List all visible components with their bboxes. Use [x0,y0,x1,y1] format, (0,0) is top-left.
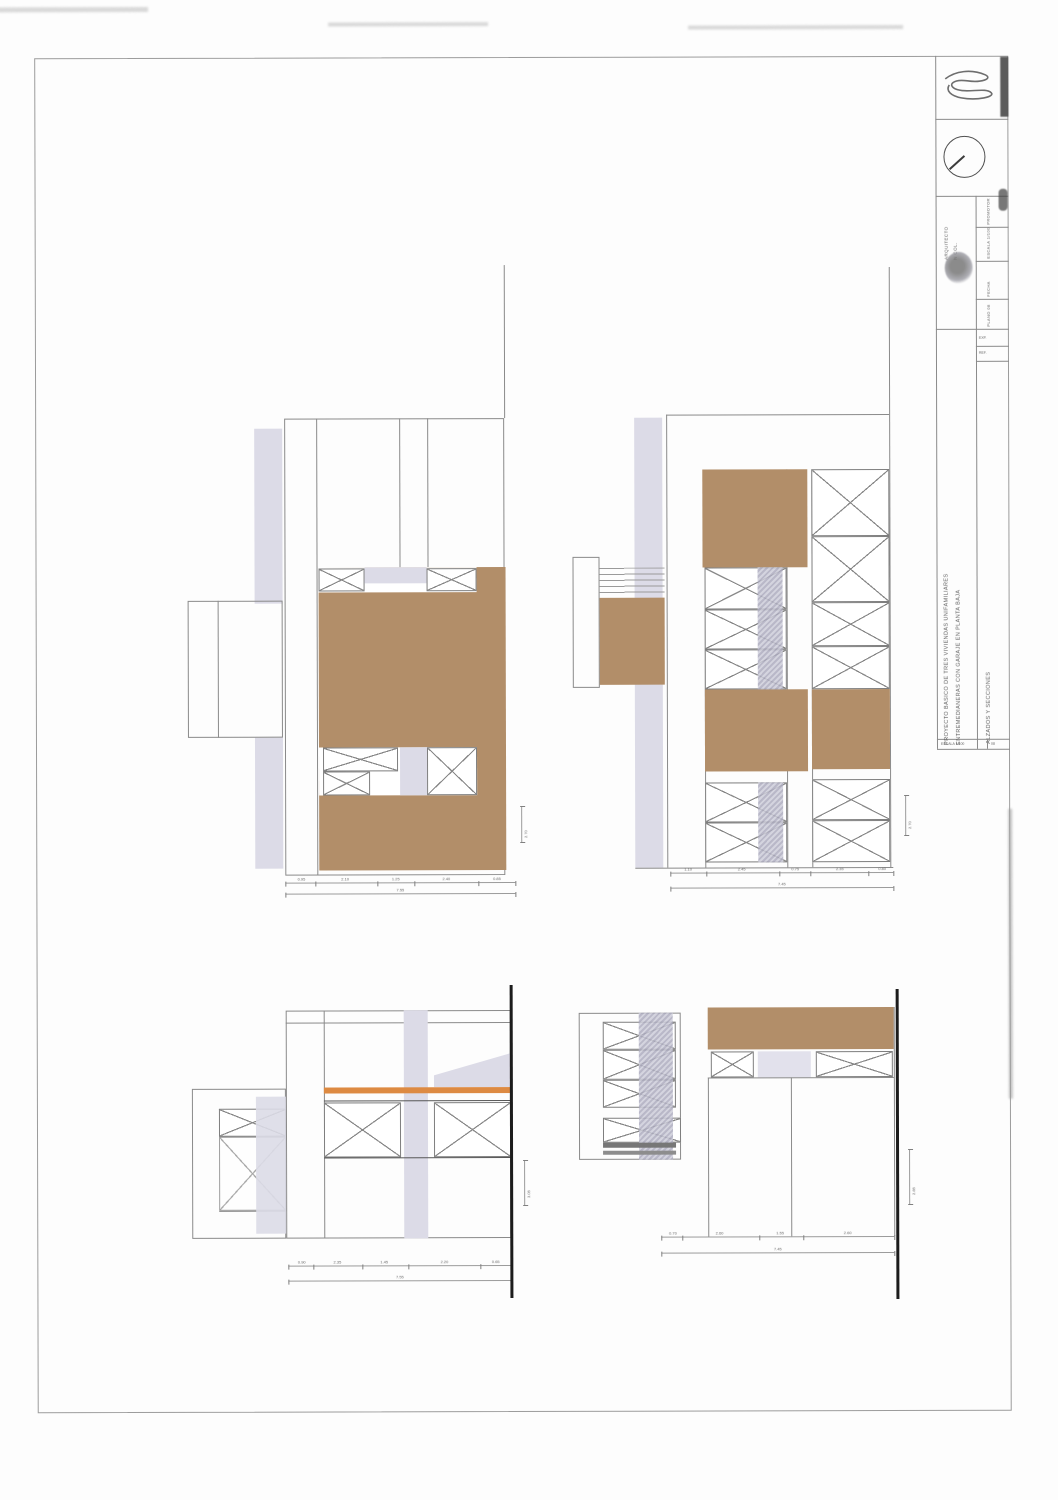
window-xbox [812,779,890,820]
side-dimension [521,806,522,842]
side-wall-panel [255,738,283,869]
cut-wall-panel [256,1097,286,1234]
dim-label: 1.55 [776,1231,784,1235]
view-elevation-top-right: 1.10 2.45 0.75 2.35 0.80 7.45 2.70 [0,0,1056,1]
window-xbox [323,747,398,771]
view-section-bottom-right: 0.70 2.60 1.55 2.60 7.45 2.85 [0,0,1056,1]
dim-label: 0.90 [298,1261,306,1265]
dim-label: 0.80 [878,867,886,871]
window-xbox [811,536,889,602]
slab-band [603,1151,676,1155]
dim-label: 2.60 [716,1231,724,1235]
meta-cell: PROMOTOR [986,198,991,225]
dim-label: 0.95 [298,878,306,882]
side-dimension [905,795,906,835]
window-xbox [319,568,365,591]
dim-label: 0.70 [669,1232,677,1236]
scan-dark-blob [999,189,1008,211]
side-dim-label: 2.70 [907,801,912,829]
dim-label: 2.45 [738,867,746,871]
meta-divider [976,346,1009,347]
meta-divider [976,261,1009,262]
dim-label: 1.25 [392,877,400,881]
dim-label: 2.35 [836,867,844,871]
dim-label: 2.60 [844,1231,852,1235]
railing-xbox [434,1102,511,1157]
window-xbox [427,747,477,795]
dim-label: 2.40 [442,877,450,881]
side-dim-label: 2.70 [523,812,528,838]
dim-label: 1.45 [380,1260,388,1264]
hatched-pier [639,1013,673,1160]
footer-sheet-number: 08 [991,742,995,746]
drawing-title: ALZADOS Y SECCIONES [985,539,992,744]
scan-smudge [328,22,488,26]
side-dimension [909,1149,910,1204]
side-dim-label: 3.05 [526,1166,531,1198]
window-xbox [816,1051,893,1077]
dim-label: 7.45 [774,1247,782,1251]
meta-cell: ESCALA 1/100 [986,230,991,259]
annex-outline [188,601,283,738]
dim-label: 2.35 [333,1260,341,1264]
window-xbox [812,820,890,862]
scan-smudge [0,7,148,12]
meta-divider [976,227,1009,228]
annex-outline [572,557,599,688]
titleblock-divider [936,329,1009,330]
window-xbox [711,1051,754,1077]
scanned-sheet-page: ARQUITECTO N COL. PROMOTOR ESCALA 1/100 … [0,0,1058,1500]
cut-wall-panel [404,1010,429,1238]
top-row-cell: REF. [979,351,987,355]
window-xbox [812,646,890,689]
view-elevation-top-left: 0.95 2.10 1.25 2.40 0.85 7.55 2.70 [0,0,1056,1]
view-section-bottom-left: 0.90 2.35 1.45 2.20 0.65 7.55 3.05 [0,0,1056,1]
scan-smudge [688,25,903,30]
dim-label: 0.65 [492,1260,500,1264]
side-dim-label: 2.85 [911,1157,916,1195]
side-wall-panel [254,429,282,604]
side-dimension [524,1160,525,1205]
timber-facade-panel [705,689,808,771]
project-title-line2: ENTREMEDIANERAS CON GARAJE EN PLANTA BAJ… [955,347,962,745]
meta-cell: FECHA [986,264,991,297]
window-xbox [323,771,370,795]
meta-divider [976,299,1009,300]
dim-label: 7.55 [396,1275,404,1279]
window-pier-panel [400,747,427,795]
meta-cell: PLANO 08 [986,302,991,327]
stair-lines [600,568,665,597]
project-title-line1: PROYECTO BASICO DE TRES VIVIENDAS UNIFAM… [943,347,950,745]
hatched-pier [758,567,783,689]
architect-label: ARQUITECTO [944,202,949,260]
slab-band [603,1143,676,1148]
footer-divider [987,739,988,749]
scan-dark-bar [1000,57,1008,117]
scan-skew-wrapper: ARQUITECTO N COL. PROMOTOR ESCALA 1/100 … [0,0,1058,1500]
college-stamp-icon [945,252,973,284]
hatched-pier [758,782,783,862]
top-row-cell: EXP. [979,336,987,340]
dim-label: 2.10 [341,877,349,881]
railing-xbox [324,1102,401,1157]
footer-scale: ESCALA 1/100 [941,742,964,746]
dim-label: 7.45 [778,882,786,886]
titleblock-divider [935,119,1008,120]
dim-label: 0.75 [791,867,799,871]
timber-facade-panel [319,567,507,870]
architect-logo-scribble-icon [941,67,997,111]
window-xbox [427,568,477,591]
dim-label: 7.55 [396,888,404,892]
floor-slab-line [324,1087,511,1093]
dim-label: 1.10 [684,868,692,872]
meta-divider [976,361,1009,362]
window-lintel-panel [365,567,427,583]
window-xbox [812,602,890,646]
titleblock-bottom-line [937,749,1010,750]
timber-facade-panel [812,689,890,769]
window-pier-panel [758,1051,811,1077]
timber-facade-panel [708,1007,894,1049]
timber-facade-panel [702,469,807,567]
window-xbox [811,469,889,536]
dim-label: 2.20 [441,1260,449,1264]
timber-facade-panel [600,598,665,685]
dim-label: 0.85 [493,877,501,881]
